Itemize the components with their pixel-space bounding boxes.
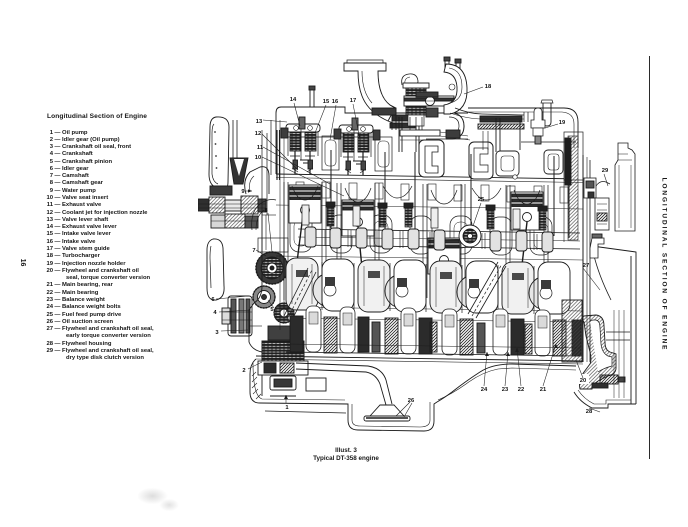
svg-text:15: 15	[323, 99, 330, 105]
svg-text:25: 25	[478, 197, 485, 203]
svg-text:3: 3	[215, 330, 219, 336]
svg-text:28: 28	[586, 409, 593, 415]
svg-text:29: 29	[602, 168, 609, 174]
svg-text:16: 16	[332, 99, 339, 105]
svg-text:27: 27	[583, 263, 589, 269]
svg-text:13: 13	[256, 119, 263, 125]
svg-text:4: 4	[213, 310, 217, 316]
svg-text:17: 17	[350, 98, 356, 104]
svg-text:11: 11	[257, 145, 264, 151]
svg-text:20: 20	[580, 378, 586, 384]
svg-text:2: 2	[242, 368, 245, 374]
svg-text:1: 1	[285, 405, 289, 411]
svg-text:24: 24	[481, 387, 488, 393]
svg-text:22: 22	[518, 387, 524, 393]
svg-text:23: 23	[502, 387, 509, 393]
svg-text:26: 26	[408, 398, 415, 404]
svg-text:12: 12	[255, 131, 261, 137]
svg-text:14: 14	[290, 97, 297, 103]
svg-text:7: 7	[252, 248, 255, 254]
svg-text:19: 19	[559, 120, 566, 126]
svg-text:18: 18	[485, 84, 492, 90]
svg-text:21: 21	[540, 387, 547, 393]
svg-text:10: 10	[255, 155, 261, 161]
